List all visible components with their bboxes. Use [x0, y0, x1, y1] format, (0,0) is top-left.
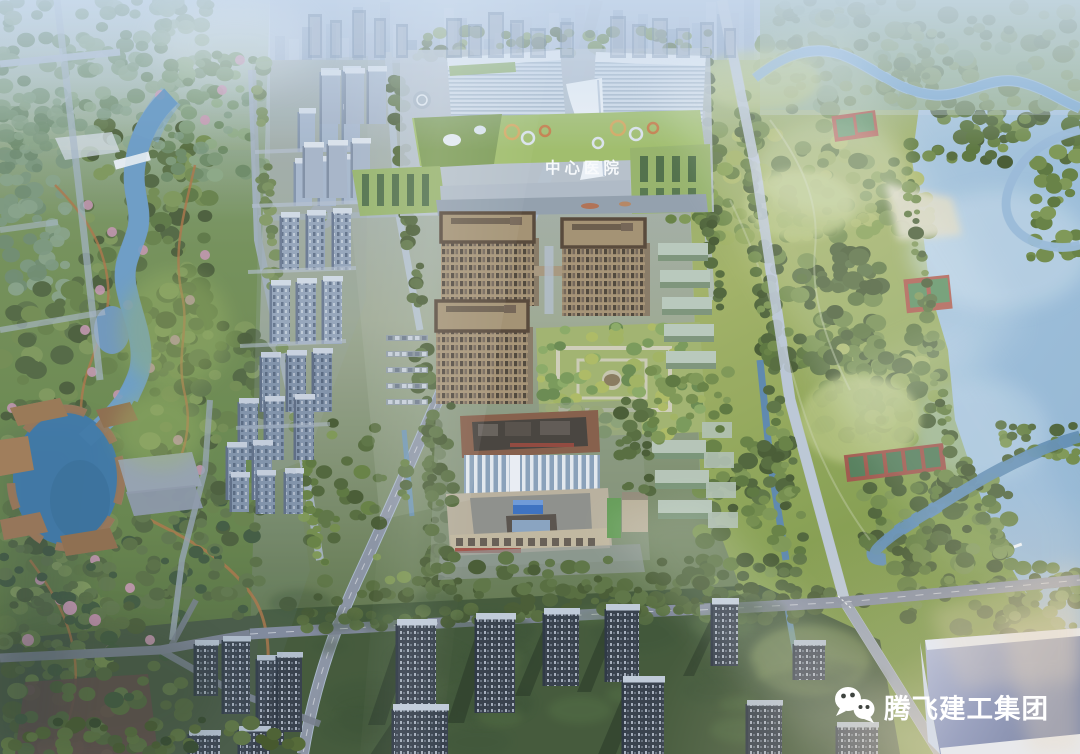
svg-text:腾飞建工集团: 腾飞建工集团: [884, 694, 1049, 724]
